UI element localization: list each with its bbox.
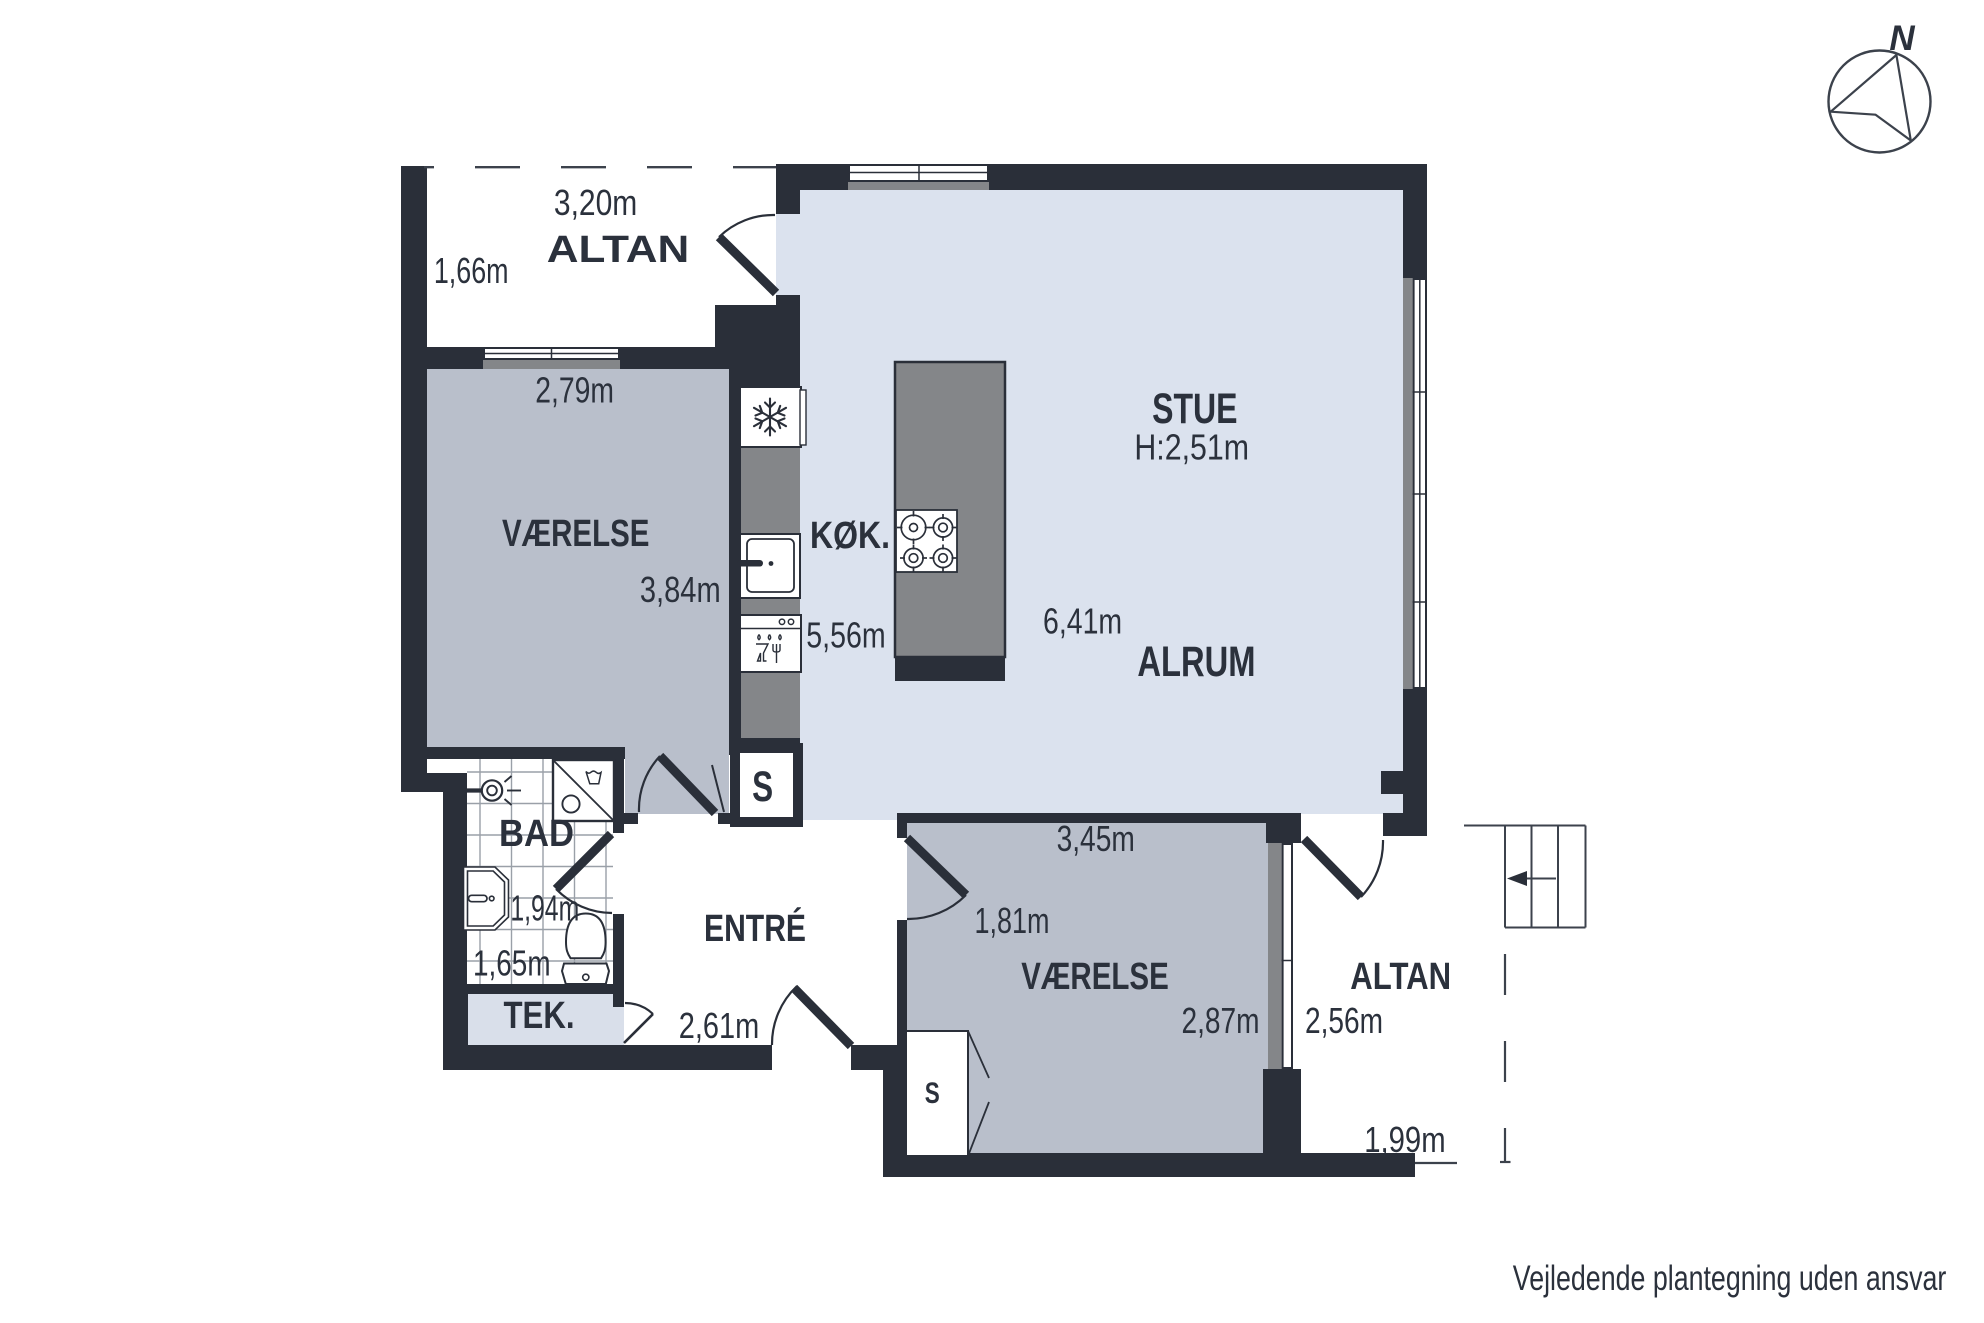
svg-text:1,65m: 1,65m — [473, 943, 551, 984]
svg-text:Vejledende plantegning uden an: Vejledende plantegning uden ansvar — [1513, 1258, 1947, 1298]
svg-text:2,56m: 2,56m — [1305, 1000, 1383, 1041]
svg-text:1,66m: 1,66m — [434, 250, 509, 291]
svg-text:S: S — [925, 1077, 940, 1110]
svg-text:BAD: BAD — [499, 813, 574, 855]
svg-text:6,41m: 6,41m — [1043, 601, 1122, 642]
svg-text:N: N — [1889, 19, 1915, 58]
svg-text:3,45m: 3,45m — [1057, 818, 1135, 859]
svg-text:KØK.: KØK. — [810, 515, 890, 557]
svg-text:3,20m: 3,20m — [554, 182, 637, 223]
svg-text:VÆRELSE: VÆRELSE — [1021, 956, 1169, 998]
svg-text:2,79m: 2,79m — [535, 370, 614, 411]
svg-text:ALRUM: ALRUM — [1137, 638, 1255, 686]
svg-text:TEK.: TEK. — [504, 995, 575, 1037]
svg-text:3,84m: 3,84m — [640, 569, 721, 610]
svg-text:1,81m: 1,81m — [975, 900, 1050, 941]
svg-text:1,99m: 1,99m — [1364, 1119, 1445, 1160]
svg-text:H:2,51m: H:2,51m — [1134, 427, 1249, 468]
svg-text:2,61m: 2,61m — [679, 1005, 760, 1046]
svg-text:2,87m: 2,87m — [1181, 1000, 1259, 1041]
svg-text:1,94m: 1,94m — [510, 888, 579, 929]
svg-text:VÆRELSE: VÆRELSE — [502, 513, 649, 555]
svg-text:ALTAN: ALTAN — [1350, 956, 1451, 998]
svg-text:5,56m: 5,56m — [806, 615, 885, 656]
svg-text:S: S — [752, 763, 773, 811]
svg-text:ENTRÉ: ENTRÉ — [704, 906, 806, 950]
svg-text:ALTAN: ALTAN — [547, 229, 690, 271]
